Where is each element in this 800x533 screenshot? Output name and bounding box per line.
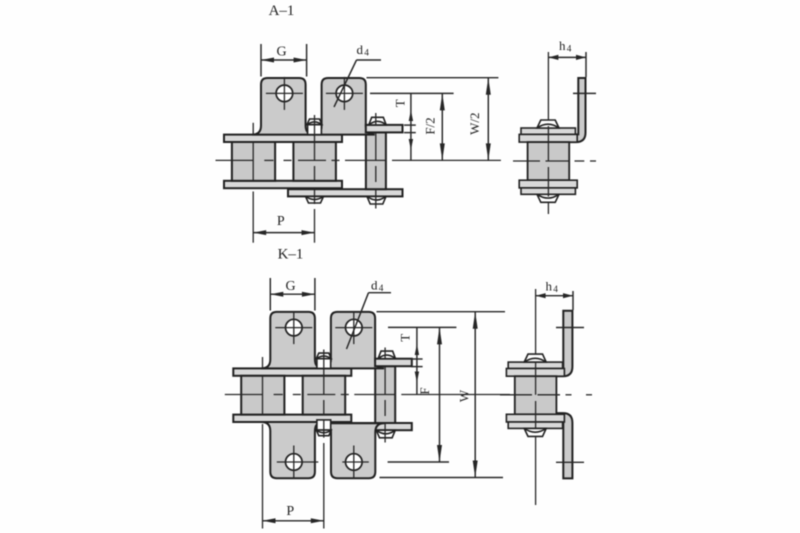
svg-text:F: F [417, 387, 432, 394]
svg-text:T: T [397, 334, 412, 342]
svg-text:d4: d4 [371, 278, 384, 295]
svg-text:K–1: K–1 [278, 247, 304, 263]
svg-text:A–1: A–1 [269, 3, 295, 19]
svg-text:h4: h4 [559, 38, 572, 55]
svg-text:W: W [457, 389, 472, 402]
svg-text:P: P [277, 214, 285, 229]
svg-text:G: G [286, 279, 296, 294]
svg-text:d4: d4 [357, 42, 370, 59]
svg-text:F/2: F/2 [422, 117, 437, 134]
svg-text:G: G [276, 45, 286, 60]
svg-text:T: T [393, 99, 408, 107]
svg-text:P: P [286, 504, 294, 519]
svg-text:W/2: W/2 [467, 113, 482, 135]
svg-text:h4: h4 [546, 279, 559, 296]
